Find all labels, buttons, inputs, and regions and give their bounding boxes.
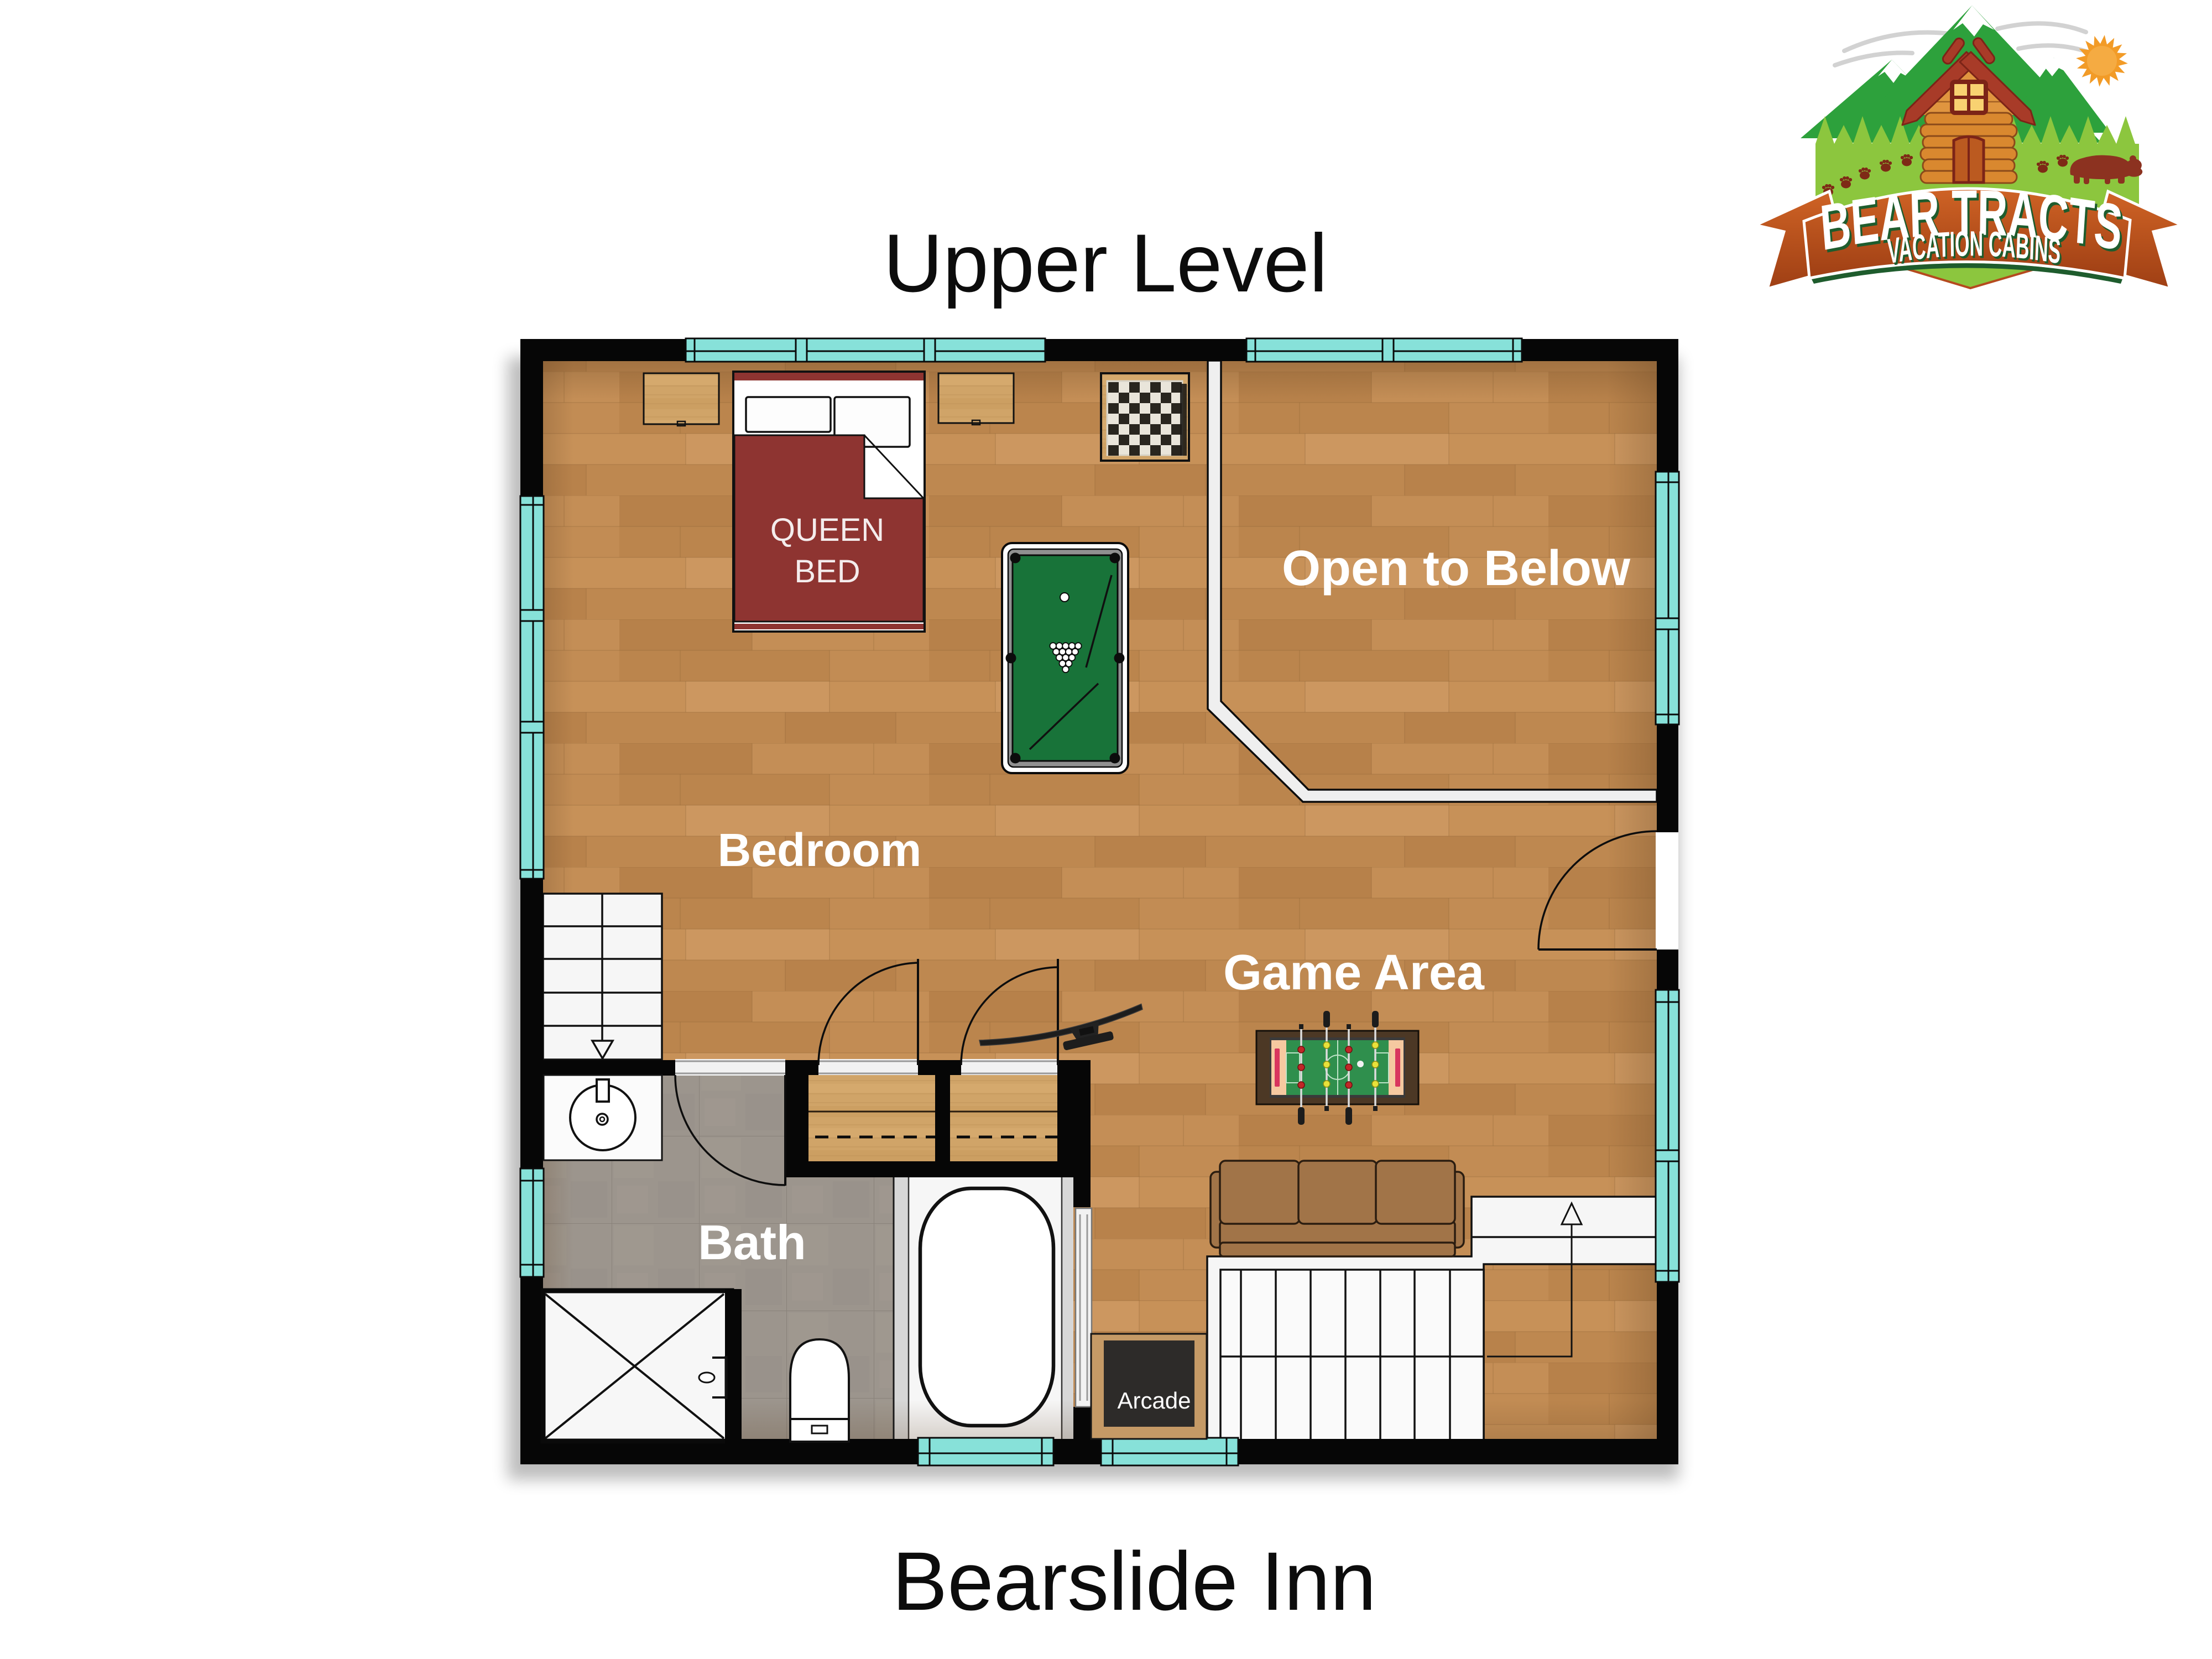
svg-text:Bath: Bath (698, 1215, 806, 1270)
svg-text:QUEEN: QUEEN (770, 512, 884, 548)
svg-text:Upper Level: Upper Level (883, 217, 1327, 309)
svg-text:Arcade: Arcade (1117, 1387, 1191, 1413)
svg-text:Game Area: Game Area (1223, 945, 1485, 1000)
svg-text:BED: BED (794, 554, 860, 589)
svg-text:Bedroom: Bedroom (718, 824, 922, 876)
svg-text:Open to Below: Open to Below (1282, 541, 1631, 596)
svg-text:Bearslide Inn: Bearslide Inn (892, 1535, 1376, 1627)
